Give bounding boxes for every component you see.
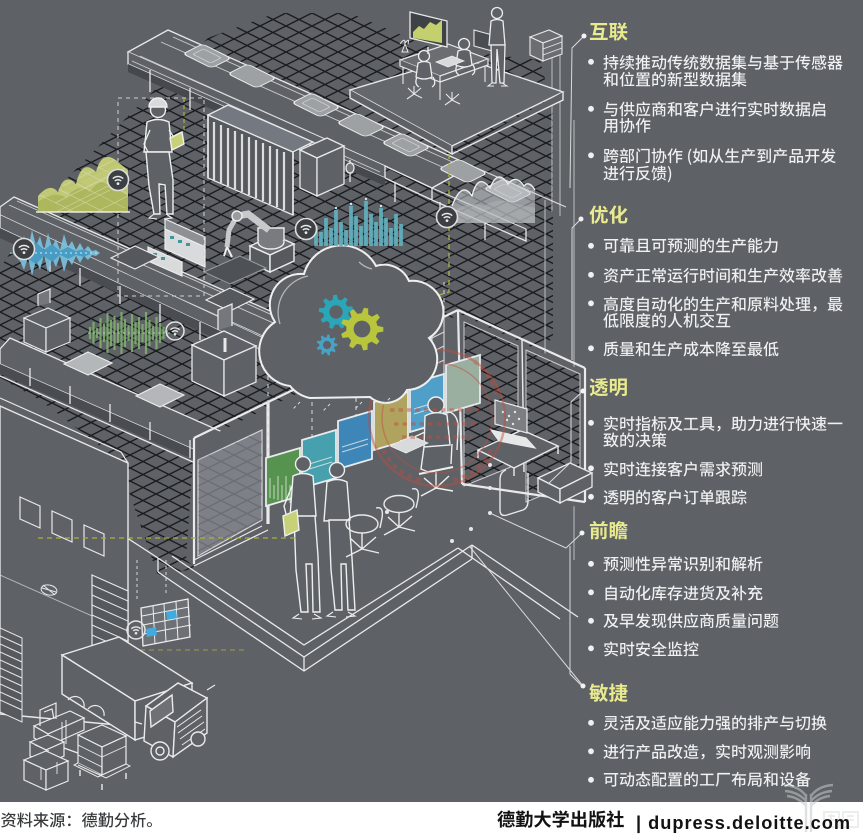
svg-text:| dupress.deloitte.com: | dupress.deloitte.com [636, 813, 851, 833]
